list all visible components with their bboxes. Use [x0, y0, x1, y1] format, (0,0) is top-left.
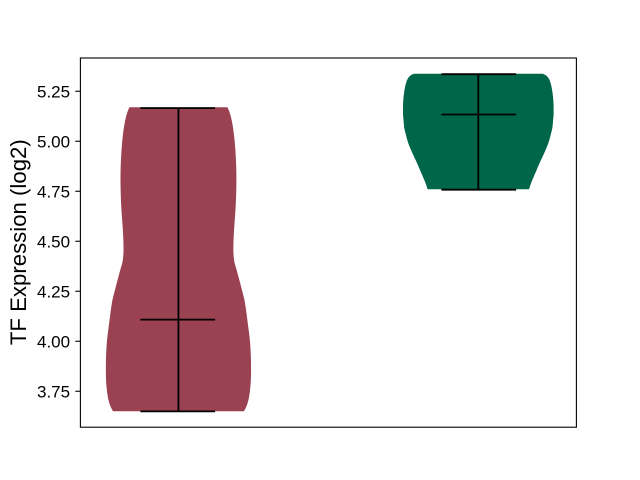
svg-text:4.00: 4.00	[37, 332, 70, 351]
svg-text:3.75: 3.75	[37, 382, 70, 401]
svg-text:5.25: 5.25	[37, 82, 70, 101]
svg-text:4.25: 4.25	[37, 282, 70, 301]
svg-text:5.00: 5.00	[37, 132, 70, 151]
svg-text:TF Expression (log2): TF Expression (log2)	[6, 139, 31, 345]
svg-text:4.50: 4.50	[37, 232, 70, 251]
svg-text:4.75: 4.75	[37, 182, 70, 201]
